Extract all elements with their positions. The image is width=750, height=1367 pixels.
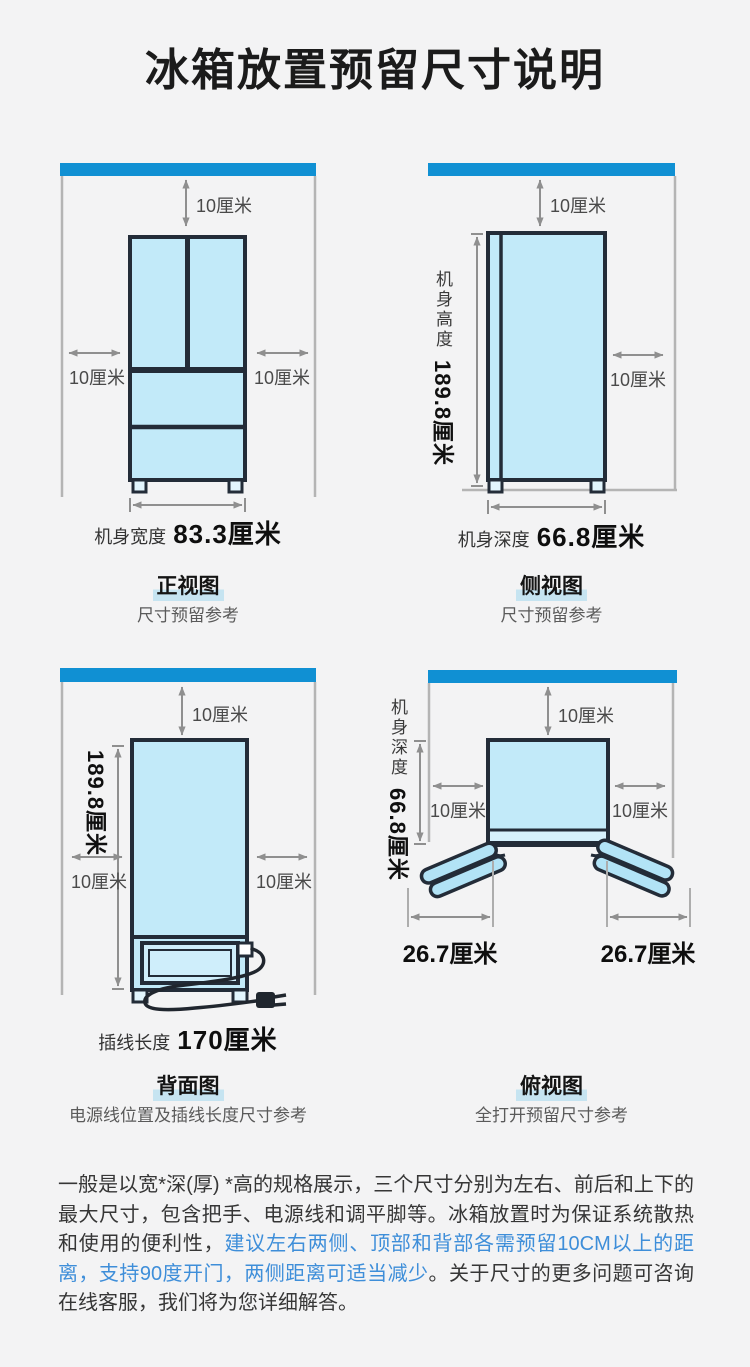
right-door-width-value: 26.7厘米 (588, 934, 708, 969)
back-height-value: 189.8厘米 (83, 750, 108, 856)
fridge-body (488, 233, 605, 480)
fridge-foot-right (229, 480, 242, 492)
back-view-caption: 电源线位置及插线长度尺寸参考 (30, 1101, 346, 1126)
ceiling-bar (60, 668, 316, 682)
top-view-caption: 全打开预留尺寸参考 (428, 1101, 675, 1126)
left-clearance-label: 10厘米 (71, 872, 127, 892)
side-depth-label: 机身深度 (458, 530, 530, 550)
left-open-door (419, 840, 507, 900)
fridge-foot-left (133, 480, 146, 492)
side-height-label: 机身高度 (433, 270, 452, 350)
back-view-diagram: 10厘米 10厘米 10厘米 (45, 665, 345, 1065)
top-view-title: 俯视图 (428, 1070, 675, 1100)
right-open-door (589, 838, 677, 898)
front-width-label: 机身宽度 (94, 527, 166, 547)
page-title: 冰箱放置预留尺寸说明 (0, 34, 750, 98)
side-height-dimension: 机身高度189.8厘米 (431, 270, 453, 466)
fridge-foot-left (489, 480, 502, 492)
top-clearance-label: 10厘米 (558, 706, 614, 726)
front-view-caption: 尺寸预留参考 (60, 601, 316, 626)
cord-length-value: 170厘米 (177, 1025, 277, 1055)
top-clearance-label: 10厘米 (192, 705, 248, 725)
side-view-diagram: 10厘米 10厘米 (415, 160, 705, 640)
cord-length-dimension: 插线长度170厘米 (60, 1020, 316, 1057)
right-clearance-label: 10厘米 (254, 368, 310, 388)
footnote-paragraph: 一般是以宽*深(厚) *高的规格展示，三个尺寸分别为左右、前后和上下的最大尺寸，… (58, 1171, 694, 1319)
side-depth-dimension: 机身深度66.8厘米 (428, 517, 675, 554)
fridge-foot-right (591, 480, 604, 492)
front-width-value: 83.3厘米 (173, 519, 282, 549)
back-view-title: 背面图 (60, 1070, 316, 1100)
right-clearance-label: 10厘米 (612, 801, 668, 821)
left-clearance-label: 10厘米 (69, 368, 125, 388)
side-height-value: 189.8厘米 (430, 350, 455, 466)
left-door-width-value: 26.7厘米 (390, 934, 510, 969)
right-clearance-label: 10厘米 (610, 370, 666, 390)
top-depth-value: 66.8厘米 (385, 778, 410, 881)
plug-prong-bottom (274, 1004, 286, 1005)
plug-prong-top (274, 995, 286, 997)
front-view-diagram: 10厘米 10厘米 10厘米 (45, 160, 345, 640)
side-view-caption: 尺寸预留参考 (428, 601, 675, 626)
back-height-dimension: 189.8厘米 (84, 750, 106, 856)
top-clearance-label: 10厘米 (550, 196, 606, 216)
fridge-foot-right (233, 990, 247, 1002)
top-view-diagram: 10厘米 10厘米 10厘米 (380, 665, 710, 1065)
side-depth-value: 66.8厘米 (537, 522, 646, 552)
left-clearance-label: 10厘米 (430, 801, 486, 821)
front-width-dimension: 机身宽度83.3厘米 (60, 514, 316, 551)
side-view-title: 侧视图 (428, 570, 675, 600)
cord-length-label: 插线长度 (98, 1033, 170, 1053)
power-cord-socket (238, 943, 252, 956)
top-clearance-label: 10厘米 (196, 196, 252, 216)
power-plug (256, 992, 275, 1008)
ceiling-bar (428, 163, 675, 176)
wall-bar (428, 670, 677, 683)
top-depth-dimension: 机身深度66.8厘米 (386, 698, 408, 881)
ceiling-bar (60, 163, 316, 176)
infographic-root: 冰箱放置预留尺寸说明 10厘米 10厘米 10厘米 机身宽度83.3厘米 正视图… (0, 0, 750, 1367)
right-clearance-label: 10厘米 (256, 872, 312, 892)
front-view-title: 正视图 (60, 570, 316, 600)
top-depth-label: 机身深度 (388, 698, 407, 778)
